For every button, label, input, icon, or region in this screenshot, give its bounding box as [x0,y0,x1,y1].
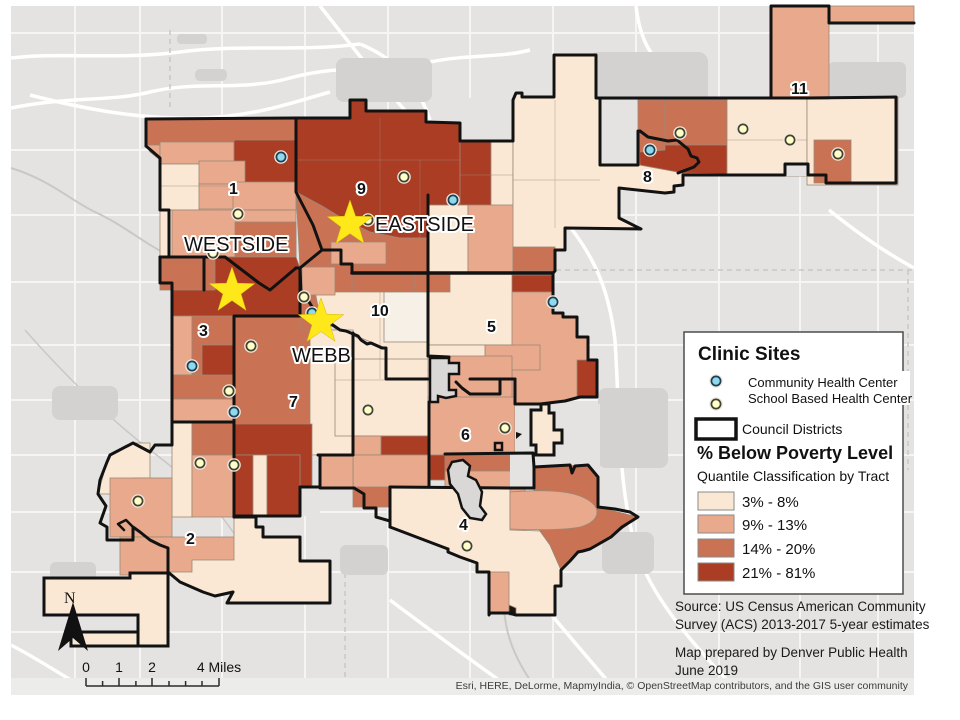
svg-text:1: 1 [115,659,123,675]
svg-text:School Based Health Center: School Based Health Center [748,391,913,406]
svg-text:0: 0 [82,659,90,675]
svg-text:Esri, HERE, DeLorme, MapmyIndi: Esri, HERE, DeLorme, MapmyIndia, © OpenS… [456,680,909,692]
svg-text:9: 9 [357,181,366,198]
svg-text:4: 4 [459,517,468,534]
svg-text:% Below Poverty Level: % Below Poverty Level [697,443,893,463]
svg-text:Quantile Classification by Tra: Quantile Classification by Tract [697,468,889,484]
svg-text:1: 1 [229,181,238,198]
svg-text:2: 2 [148,659,156,675]
svg-text:Council Districts: Council Districts [742,421,842,437]
svg-text:N: N [64,590,76,607]
svg-text:14% - 20%: 14% - 20% [742,541,815,558]
svg-text:11: 11 [791,81,808,98]
svg-text:Survey (ACS) 2013-2017 5-year: Survey (ACS) 2013-2017 5-year estimates [675,617,930,632]
svg-text:9% - 13%: 9% - 13% [742,517,807,534]
svg-text:Map prepared by Denver Public: Map prepared by Denver Public Health [675,645,908,660]
svg-text:3% - 8%: 3% - 8% [742,494,799,511]
svg-text:21% - 81%: 21% - 81% [742,565,815,582]
svg-text:3: 3 [199,323,208,340]
svg-text:2: 2 [186,531,195,548]
svg-text:10: 10 [371,303,389,320]
svg-text:7: 7 [289,394,298,411]
svg-text:WESTSIDE: WESTSIDE [184,234,288,256]
svg-text:WEBB: WEBB [292,345,351,367]
svg-text:Community Health Center: Community Health Center [748,375,898,390]
svg-text:Clinic Sites: Clinic Sites [698,344,800,365]
svg-text:EASTSIDE: EASTSIDE [375,214,474,236]
svg-text:Source: US Census American Com: Source: US Census American Community [675,599,926,614]
svg-text:June 2019: June 2019 [675,663,738,678]
svg-text:4 Miles: 4 Miles [197,659,241,675]
svg-text:6: 6 [461,427,470,444]
svg-text:8: 8 [643,169,652,186]
svg-text:5: 5 [487,319,496,336]
